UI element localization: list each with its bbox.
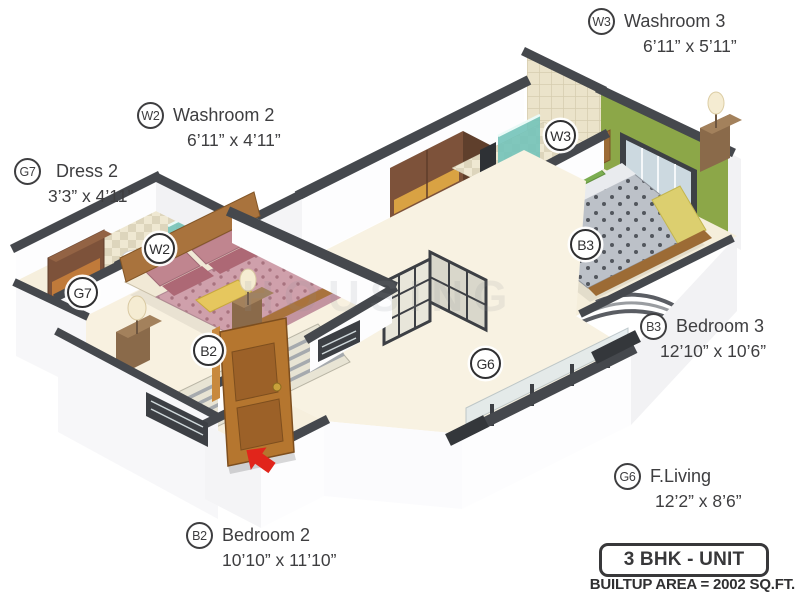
plan-marker-g6: G6	[470, 348, 501, 379]
label-dress-2: G7 Dress 2 3’3” x 4’11”	[14, 158, 133, 207]
badge-w2: W2	[137, 102, 164, 129]
badge-g7: G7	[14, 158, 41, 185]
plan-marker-w3: W3	[545, 120, 576, 151]
label-f-living: G6 F.Living 12’2” x 8’6”	[614, 463, 742, 512]
badge-b2: B2	[186, 522, 213, 549]
badge-b3: B3	[640, 313, 667, 340]
unit-type-box: 3 BHK - UNIT	[599, 543, 769, 577]
plan-marker-g7: G7	[67, 277, 98, 308]
builtup-area-text: BUILTUP AREA = 2002 SQ.FT.	[578, 576, 795, 593]
label-washroom-2: W2 Washroom 2 6’11” x 4’11”	[137, 102, 281, 151]
plan-marker-b3: B3	[570, 229, 601, 260]
label-bedroom-2: B2 Bedroom 2 10’10” x 11’10”	[186, 522, 336, 571]
floorplan-page: HOUSING W3 W2 G7 B3 G6 B2 W3 Washroom 3 …	[0, 0, 800, 600]
badge-g6: G6	[614, 463, 641, 490]
label-bedroom-3: B3 Bedroom 3 12’10” x 10’6”	[640, 313, 766, 362]
plan-marker-b2: B2	[193, 335, 224, 366]
label-washroom-3: W3 Washroom 3 6’11” x 5’11”	[588, 8, 737, 57]
badge-w3: W3	[588, 8, 615, 35]
plan-marker-w2: W2	[144, 233, 175, 264]
door-knob	[273, 383, 281, 391]
